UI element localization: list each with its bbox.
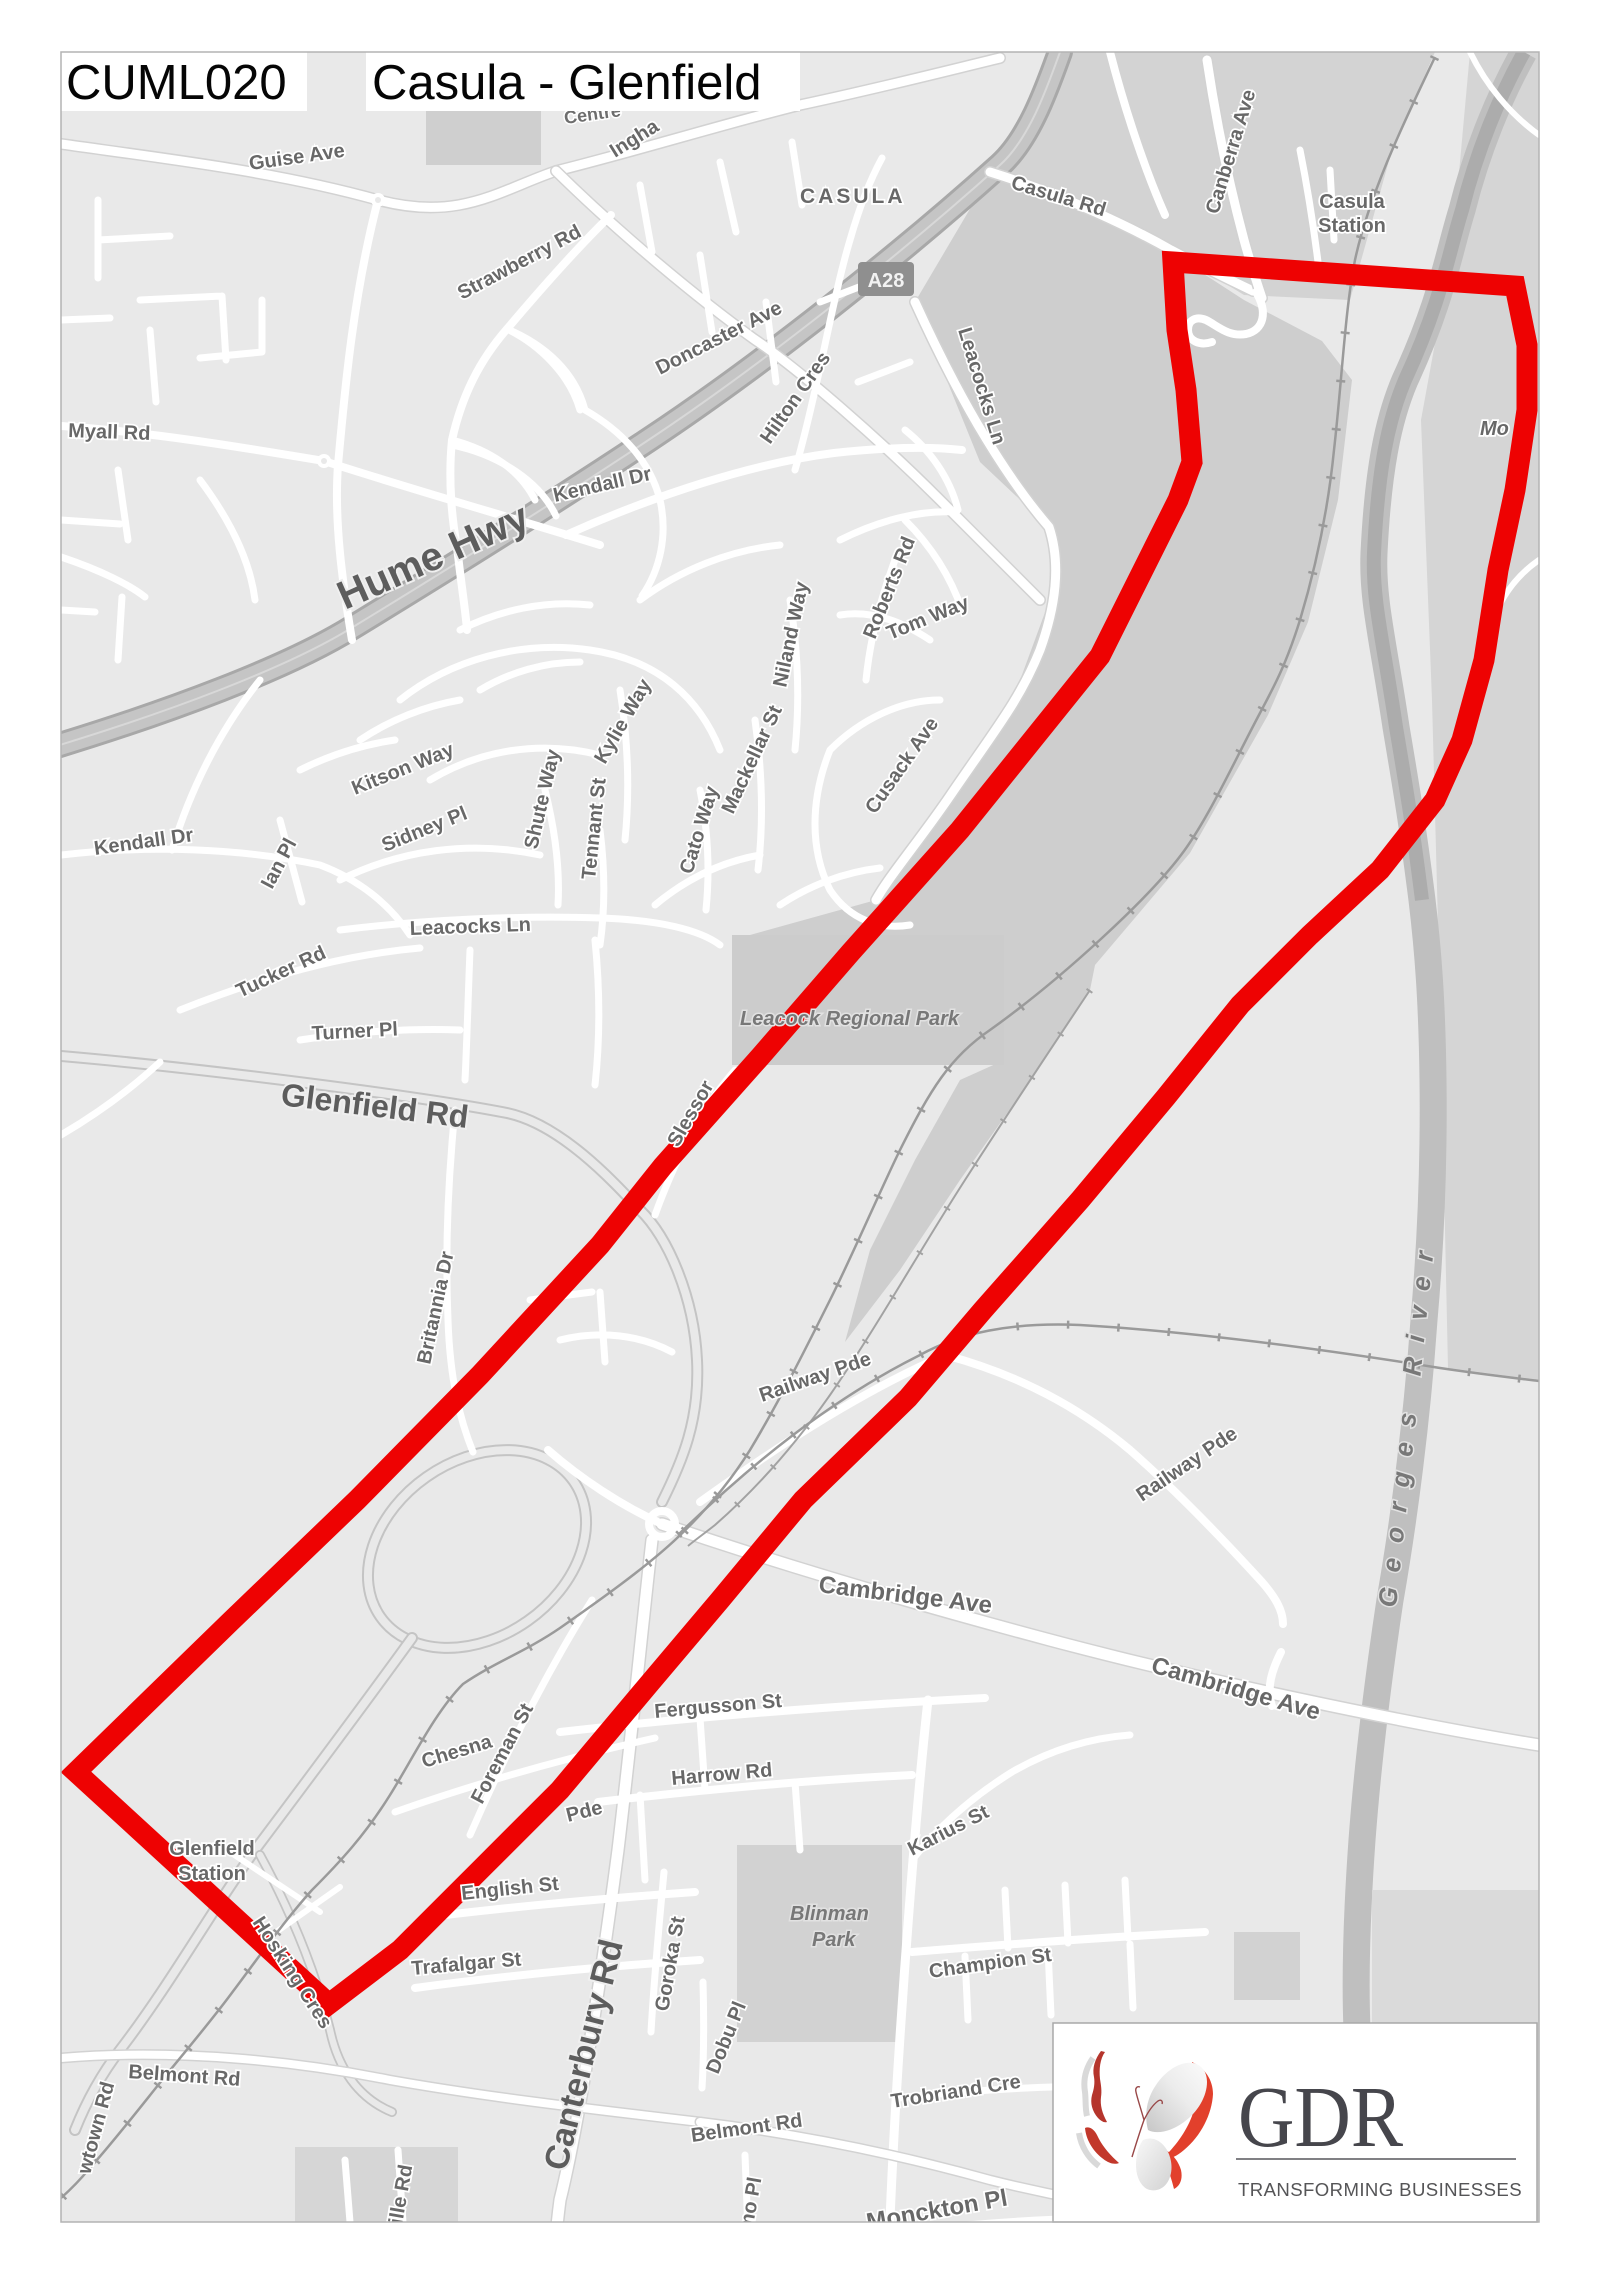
svg-text:Station: Station — [178, 1863, 246, 1885]
svg-text:A28: A28 — [868, 270, 905, 292]
svg-text:Mo: Mo — [1480, 418, 1509, 440]
svg-text:Station: Station — [1318, 215, 1386, 237]
svg-text:Park: Park — [812, 1929, 856, 1951]
svg-text:Casula: Casula — [1319, 191, 1385, 213]
svg-text:Glenfield: Glenfield — [169, 1838, 255, 1860]
svg-text:GDR: GDR — [1238, 2068, 1403, 2165]
svg-text:Leacocks Ln: Leacocks Ln — [409, 914, 531, 940]
svg-text:Myall Rd: Myall Rd — [68, 420, 151, 445]
svg-text:Blinman: Blinman — [790, 1903, 869, 1925]
svg-text:CASULA: CASULA — [800, 185, 906, 208]
svg-text:Turner Pl: Turner Pl — [311, 1019, 398, 1045]
svg-text:TRANSFORMING BUSINESSES: TRANSFORMING BUSINESSES — [1238, 2179, 1522, 2200]
svg-text:Casula - Glenfield: Casula - Glenfield — [372, 56, 761, 110]
svg-text:CUML020: CUML020 — [66, 56, 287, 110]
svg-text:Leacock Regional Park: Leacock Regional Park — [740, 1008, 960, 1030]
